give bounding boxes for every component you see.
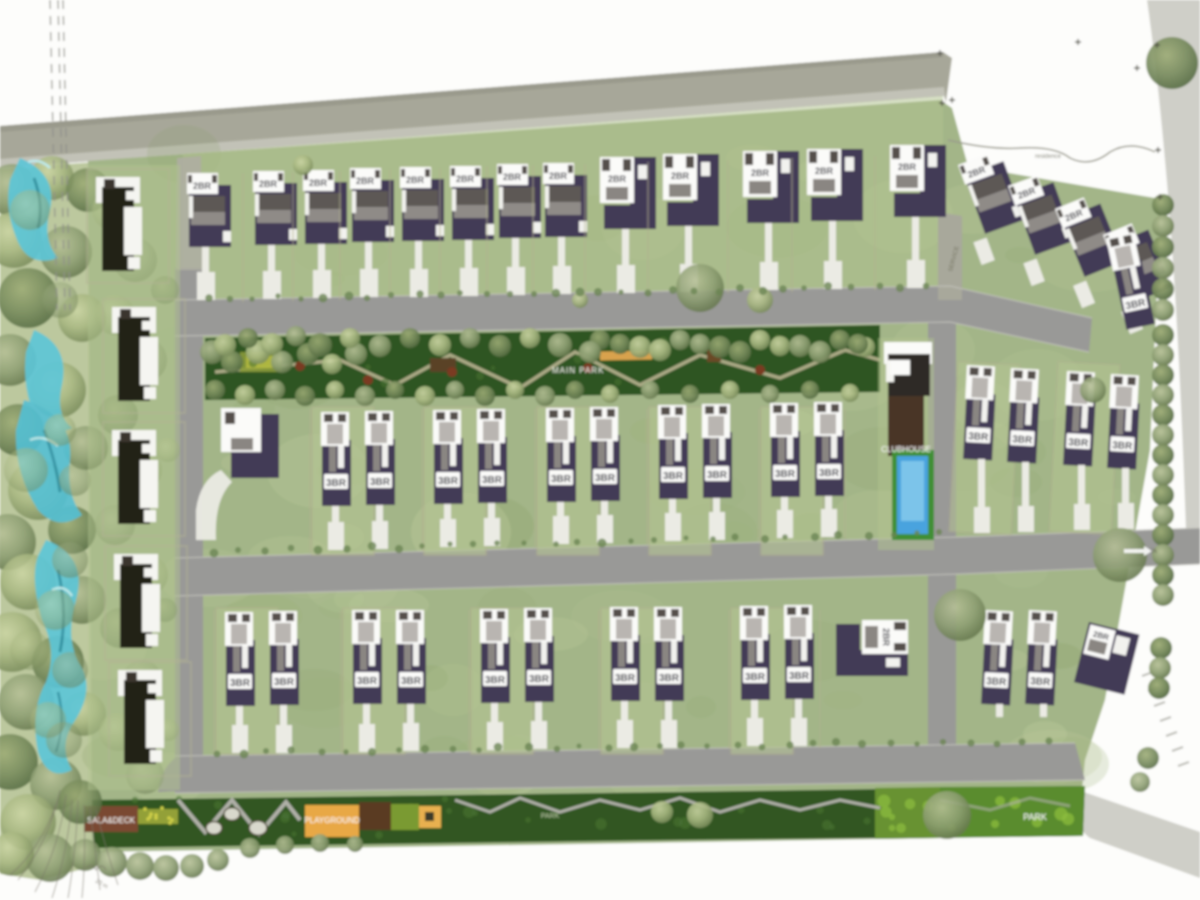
svg-text:PARK: PARK bbox=[541, 813, 560, 820]
svg-text:PARK: PARK bbox=[1023, 812, 1047, 822]
svg-text:residence: residence bbox=[1035, 154, 1062, 160]
svg-text:SALA&DECK: SALA&DECK bbox=[87, 816, 136, 825]
svg-text:MAIN PARK: MAIN PARK bbox=[552, 366, 604, 375]
svg-text:PLAYGROUND: PLAYGROUND bbox=[304, 816, 360, 825]
svg-text:CLUBHOUSE: CLUBHOUSE bbox=[881, 445, 931, 454]
